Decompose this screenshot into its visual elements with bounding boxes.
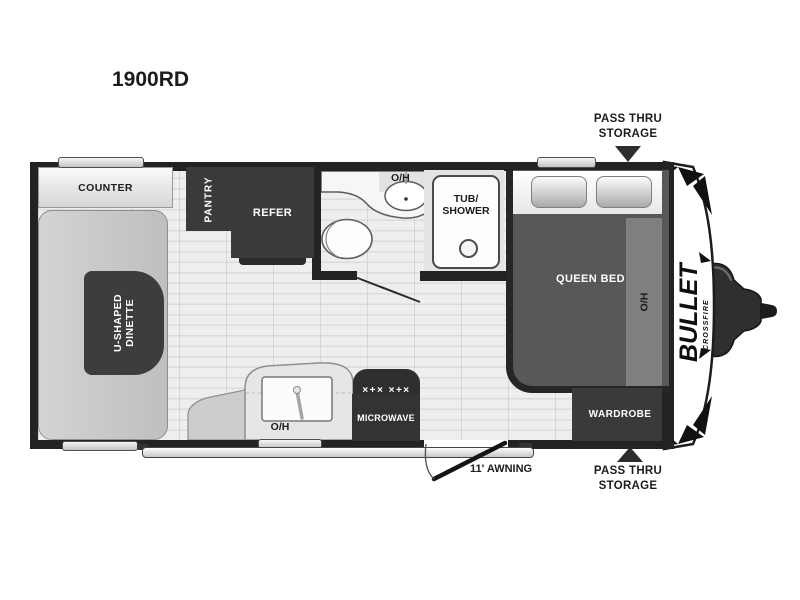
pass-thru-top-label-line2: STORAGE [578, 128, 678, 140]
pass-thru-top-label-line1: PASS THRU [578, 113, 678, 125]
page-title: 1900RD [112, 68, 189, 92]
awning-label: 11' AWNING [470, 463, 532, 475]
floorplan-canvas: 1900RD BULLET CROSSFIRE [0, 0, 800, 600]
entry-door-swing-arc [425, 444, 434, 479]
arrow-down-icon [615, 146, 641, 162]
pass-thru-bottom-label-line2: STORAGE [578, 480, 678, 492]
bathroom-door [355, 277, 420, 302]
pass-thru-bottom-label-line1: PASS THRU [578, 465, 678, 477]
arrow-up-icon [617, 447, 643, 462]
kitchen-overhead-label: O/H [260, 421, 300, 433]
bath-overhead-label: O/H [391, 172, 410, 184]
